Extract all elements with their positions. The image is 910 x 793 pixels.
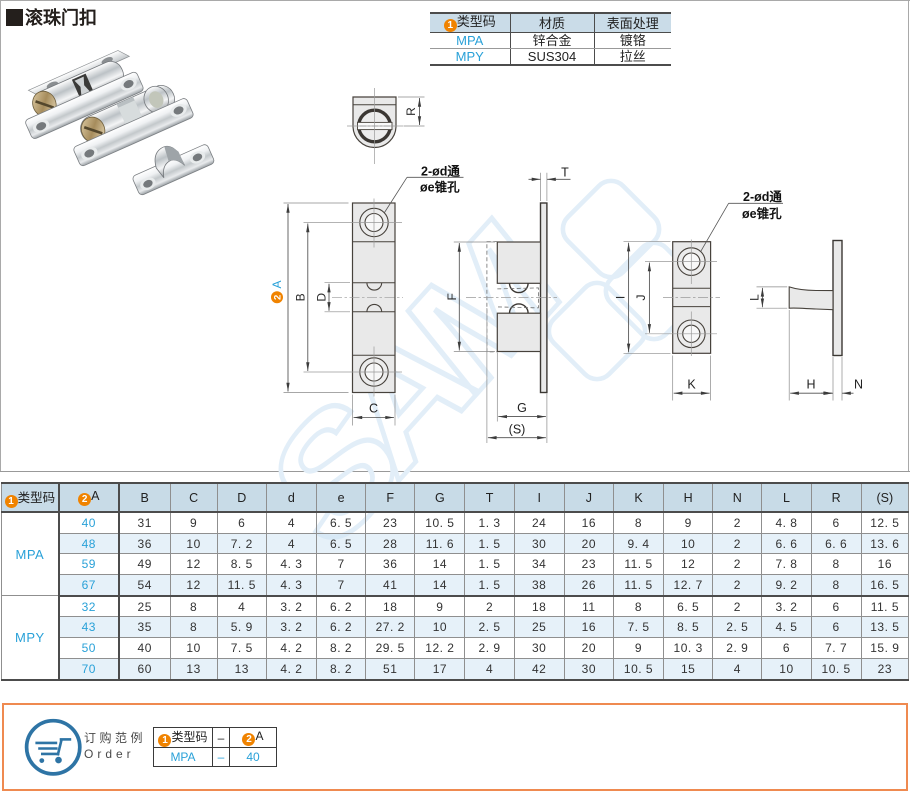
svg-text:K: K <box>687 378 696 392</box>
svg-text:D: D <box>315 293 329 302</box>
svg-text:øe锥孔: øe锥孔 <box>420 180 460 195</box>
svg-text:R: R <box>404 107 418 116</box>
svg-text:F: F <box>445 293 459 300</box>
svg-text:G: G <box>517 401 527 415</box>
svg-text:2-ød通: 2-ød通 <box>743 189 782 204</box>
svg-text:(S): (S) <box>509 423 526 437</box>
svg-text:øe锥孔: øe锥孔 <box>742 206 782 221</box>
svg-text:A: A <box>270 280 284 288</box>
svg-text:C: C <box>369 402 378 416</box>
svg-text:I: I <box>614 296 628 299</box>
svg-text:N: N <box>854 378 863 392</box>
svg-text:2-ød通: 2-ød通 <box>421 164 460 179</box>
svg-text:L: L <box>748 294 762 301</box>
svg-text:H: H <box>806 378 815 392</box>
svg-text:T: T <box>561 166 569 180</box>
svg-text:B: B <box>294 293 308 301</box>
svg-text:J: J <box>634 295 648 301</box>
svg-text:2: 2 <box>273 295 284 300</box>
